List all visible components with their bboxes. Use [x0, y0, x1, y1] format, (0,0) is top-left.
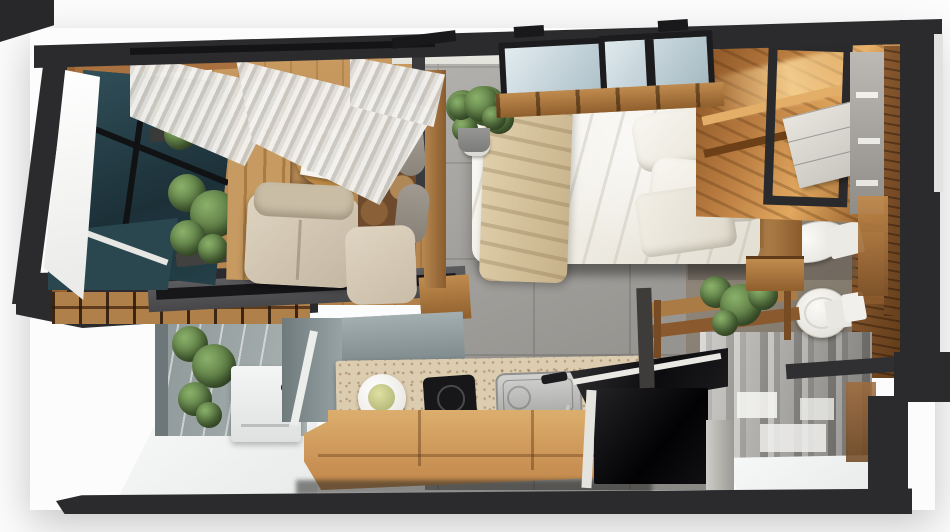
closet-shelf-box: [800, 398, 834, 420]
entry-wall-dark-edge: [155, 324, 168, 436]
bathroom-shelf-plant: [712, 310, 738, 336]
right-wall-highlight: [934, 34, 943, 192]
island-black-appliance: [594, 388, 708, 484]
sofa-seat-cushion: [345, 225, 418, 305]
hob-ring: [436, 384, 466, 414]
bench-seam: [531, 410, 534, 470]
gray-pillar: [706, 420, 734, 502]
closet-shelf-box: [737, 392, 777, 418]
armchair-back-cushion: [253, 181, 355, 220]
skylight-bracket: [658, 19, 689, 32]
apartment-3d-floor-plan: [0, 0, 950, 532]
window-plant: [198, 234, 228, 264]
hanging-plant: [196, 402, 222, 428]
mirror-shelf-tick: [858, 138, 880, 144]
plate-food: [368, 384, 395, 411]
mirror-shelf-tick: [856, 92, 878, 98]
bench-seam: [418, 410, 421, 466]
storage-unit-slot: [241, 424, 289, 427]
nightstand: [746, 256, 804, 291]
right-room-glow: [858, 196, 888, 296]
paper-holder: [841, 291, 868, 322]
right-wall-jut: [894, 352, 950, 402]
skylight-bracket: [514, 25, 545, 38]
mirror-shelf-tick: [856, 180, 878, 186]
closet-shelf-box: [760, 424, 826, 452]
shelf-support: [654, 300, 661, 358]
sofa-side-plant-pot: [458, 128, 490, 152]
